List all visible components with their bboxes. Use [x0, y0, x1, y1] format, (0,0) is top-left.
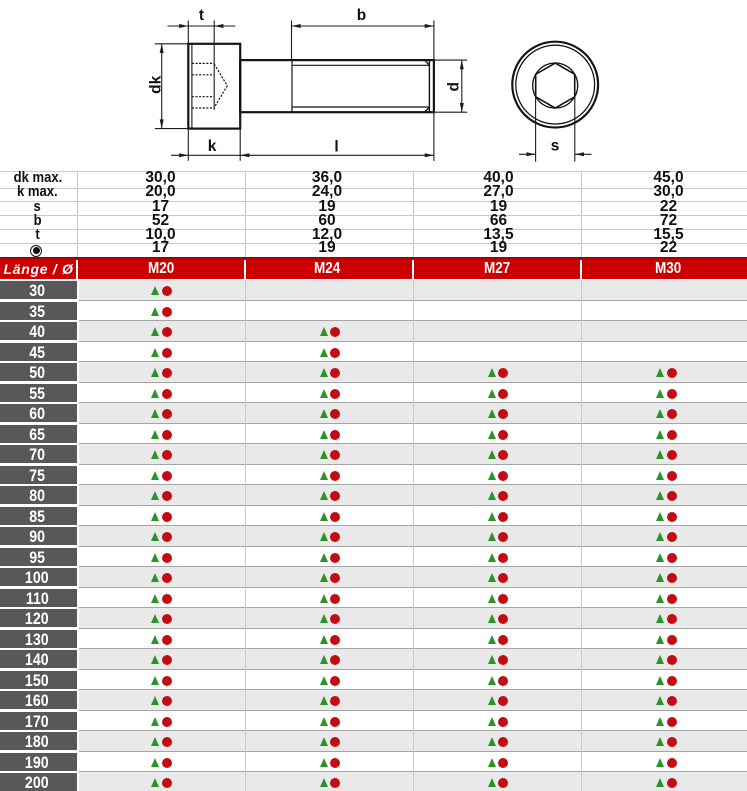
svg-text:k: k	[208, 138, 217, 155]
svg-text:t: t	[199, 7, 204, 24]
svg-text:d: d	[446, 82, 463, 91]
svg-text:dk: dk	[147, 75, 164, 93]
svg-text:b: b	[357, 7, 366, 24]
svg-text:l: l	[334, 139, 338, 156]
svg-text:s: s	[551, 138, 560, 155]
